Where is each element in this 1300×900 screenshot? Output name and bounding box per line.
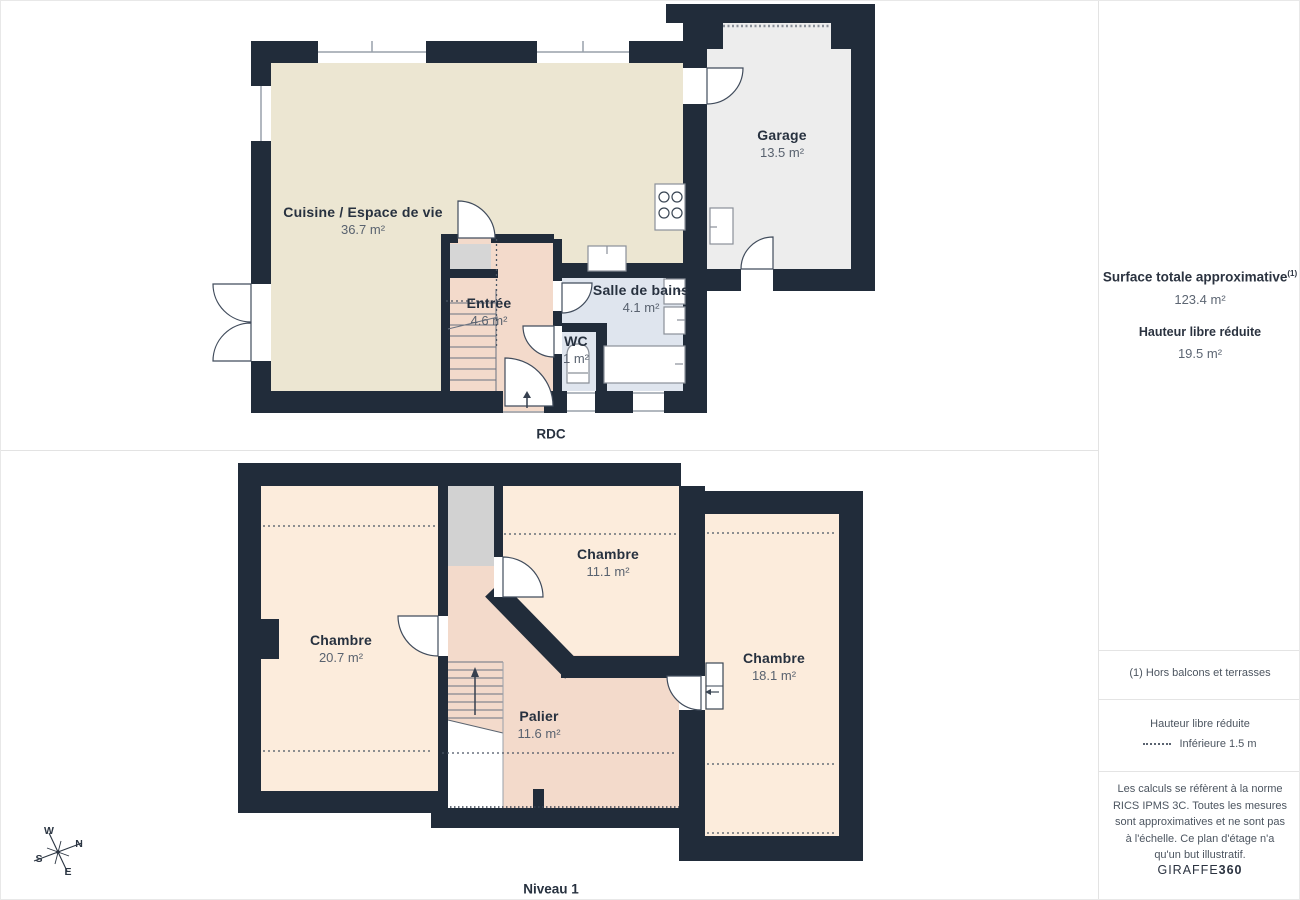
reduced-height-title: Hauteur libre réduite (1099, 325, 1300, 339)
room-label-chambre3: Chambre 18.1 m² (743, 650, 805, 684)
floor-label-niveau1: Niveau 1 (523, 882, 579, 897)
disclaimer-text: Les calculs se réfèrent à la norme RICS … (1112, 781, 1288, 864)
understairs-storage (450, 244, 491, 269)
room-label-chambre2: Chambre 11.1 m² (577, 546, 639, 580)
brand-logo: GIRAFFE360 (1099, 863, 1300, 877)
summary-sidebar: Surface totale approximative(1) 123.4 m²… (1098, 1, 1300, 900)
sidebar-divider (1099, 699, 1300, 700)
surface-total-value: 123.4 m² (1099, 292, 1300, 307)
bathtub (604, 346, 685, 383)
surface-total-title: Surface totale approximative(1) (1099, 269, 1300, 285)
footnote-text: (1) Hors balcons et terrasses (1099, 667, 1300, 679)
compass-west-label: W (44, 825, 54, 837)
room-label-cuisine: Cuisine / Espace de vie 36.7 m² (283, 204, 442, 238)
room-label-garage: Garage 13.5 m² (757, 127, 806, 161)
compass-east-label: E (64, 866, 71, 878)
water-heater (710, 208, 733, 244)
sidebar-divider (1099, 650, 1300, 651)
floors-divider (1, 450, 1098, 451)
radiator (705, 663, 723, 709)
legend-item-label: Inférieure 1.5 m (1179, 738, 1256, 750)
compass-icon (11, 816, 101, 891)
french-door-leaf (213, 284, 251, 322)
reduced-height-value: 19.5 m² (1099, 346, 1300, 361)
room-label-chambre1: Chambre 20.7 m² (310, 632, 372, 666)
footnote-marker: (1) (1287, 269, 1297, 278)
rdc-floorplan (1, 1, 1098, 451)
stair-void (448, 720, 503, 808)
french-door-leaf (213, 323, 251, 361)
room-label-wc: WC 1 m² (563, 333, 589, 367)
niveau1-floorplan (1, 451, 1098, 900)
room-label-salle-de-bains: Salle de bains 4.1 m² (593, 282, 689, 316)
surface-summary: Surface totale approximative(1) 123.4 m²… (1099, 269, 1300, 361)
stove (655, 184, 685, 230)
legend-row: Inférieure 1.5 m (1099, 738, 1300, 750)
room-label-entree: Entrée 4.6 m² (467, 295, 512, 329)
floor-label-rdc: RDC (536, 427, 565, 442)
sidebar-divider (1099, 771, 1300, 772)
room-label-palier: Palier 11.6 m² (517, 708, 560, 742)
reduced-height-dash-icon (1143, 743, 1171, 746)
compass-south-label: S (35, 853, 42, 865)
stairwell (448, 486, 494, 566)
legend-title: Hauteur libre réduite (1099, 718, 1300, 730)
compass-north-label: N (75, 838, 83, 850)
floorplan-page: Cuisine / Espace de vie 36.7 m² Garage 1… (0, 0, 1300, 900)
